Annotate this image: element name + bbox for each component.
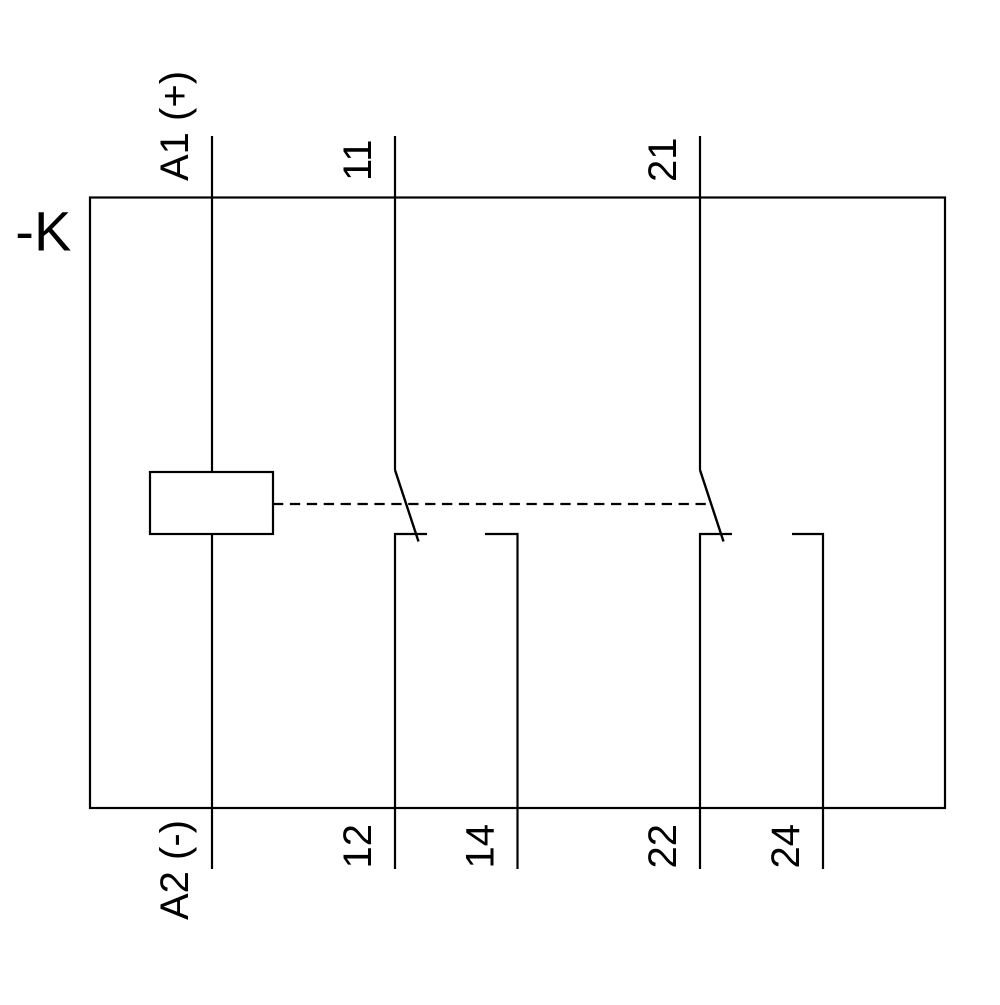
svg-text:A1 (+): A1 (+)	[153, 71, 197, 181]
svg-text:A2 (-): A2 (-)	[153, 820, 197, 920]
svg-text:11: 11	[336, 139, 380, 181]
svg-text:22: 22	[641, 824, 685, 869]
svg-text:12: 12	[336, 824, 380, 869]
svg-text:14: 14	[459, 824, 503, 869]
svg-text:21: 21	[641, 138, 685, 183]
svg-text:-K: -K	[15, 200, 71, 263]
svg-text:24: 24	[764, 824, 808, 869]
